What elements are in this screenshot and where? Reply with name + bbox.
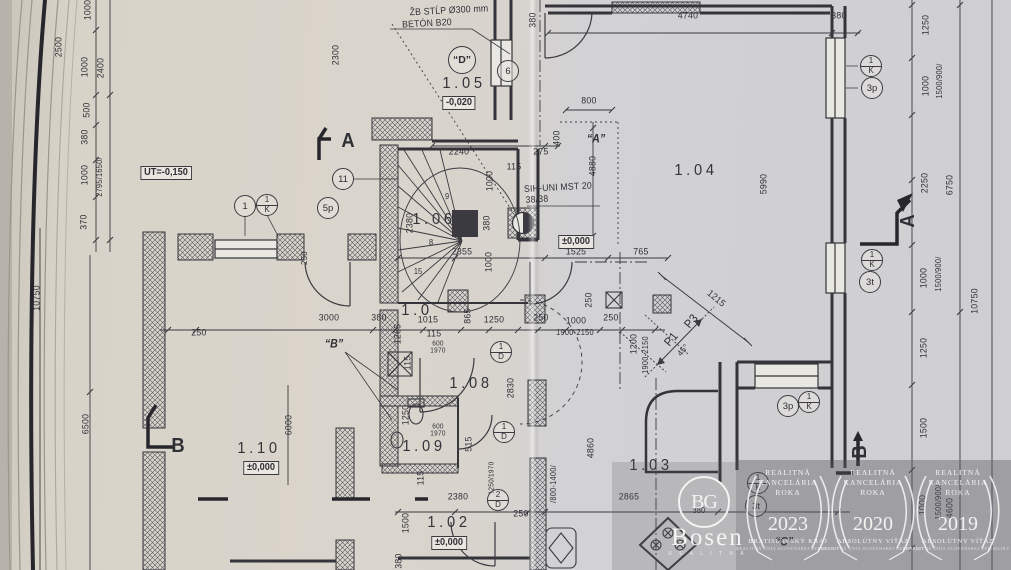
dimension-label: P1 bbox=[662, 330, 680, 348]
dimension-label: 380 bbox=[394, 553, 404, 568]
dimension-label: 1000 bbox=[919, 268, 929, 289]
dimension-label: 250 bbox=[533, 313, 548, 323]
dimension-label: 2240 bbox=[449, 147, 470, 157]
room-label-1.02: 1.02 bbox=[427, 515, 470, 531]
ref-marker-bottom: K bbox=[799, 402, 819, 411]
ref-marker-bottom: K bbox=[861, 66, 881, 75]
ref-marker-3p: 3p bbox=[861, 77, 883, 99]
ref-marker-1-D: 1D bbox=[490, 341, 512, 363]
dimension-label: 2830 bbox=[506, 378, 516, 399]
floor-plan-photo: 100025001000240050038010002795/1650/3701… bbox=[0, 0, 1011, 570]
dimension-label: 6750 bbox=[945, 175, 955, 196]
detail-ref-label: “C” bbox=[775, 537, 793, 549]
room-label-1.0: 1.0 bbox=[401, 303, 433, 319]
ref-marker-label: 3t bbox=[866, 277, 874, 288]
dimension-label: 765 bbox=[633, 247, 648, 257]
dimension-label: 370 bbox=[79, 214, 89, 229]
dimension-label: 1000 bbox=[918, 495, 928, 516]
dimension-label: 1000 bbox=[80, 165, 90, 186]
dimension-label: 600 bbox=[432, 341, 444, 348]
annotation-note: BETÓN B20 bbox=[402, 18, 452, 30]
dimension-label: 400 bbox=[552, 130, 562, 145]
ref-marker-label: 11 bbox=[338, 174, 348, 185]
dimension-label: 1250 bbox=[919, 338, 929, 359]
dimension-label: 5990 bbox=[759, 174, 769, 195]
ref-marker-bottom: D bbox=[494, 432, 514, 441]
ref-marker-3t: 3t bbox=[859, 271, 881, 293]
level-label: UT=-0,150 bbox=[140, 166, 191, 180]
ref-marker-top: 1 bbox=[748, 474, 768, 482]
dimension-label: 250 bbox=[300, 251, 309, 265]
dimension-label: 115 bbox=[416, 471, 426, 486]
dimension-label: 1500/900/ bbox=[935, 256, 943, 291]
ref-marker-label: 3p bbox=[867, 83, 878, 94]
dimension-label: 515 bbox=[464, 436, 474, 451]
dimension-label: 800 bbox=[581, 96, 596, 106]
detail-circle-D: “D” bbox=[448, 46, 476, 74]
dimension-label: 115 bbox=[507, 162, 522, 172]
ref-marker-1-K: 1K bbox=[256, 194, 278, 216]
dimension-label: 115 bbox=[427, 329, 442, 339]
dimension-label: 380 bbox=[482, 215, 492, 230]
dimension-label: 2380 bbox=[448, 492, 469, 502]
dimension-label: 250 bbox=[584, 292, 594, 307]
dimension-label: 380 bbox=[371, 313, 386, 323]
section-mark-B: B bbox=[171, 436, 184, 456]
room-label-1.09: 1.09 bbox=[402, 439, 445, 455]
room-label-1.04: 1.04 bbox=[674, 163, 717, 179]
dimension-label: 4740 bbox=[678, 11, 699, 21]
dimension-label: 380 bbox=[80, 129, 90, 144]
ref-marker-label: 5p bbox=[323, 203, 334, 214]
dimension-label: 1500 bbox=[919, 418, 929, 439]
dimension-label: P3 bbox=[682, 312, 700, 330]
ref-marker-top: 1 bbox=[491, 343, 511, 351]
detail-ref-label: “B” bbox=[325, 339, 343, 351]
ref-marker-1-K: 1K bbox=[861, 249, 883, 271]
stair-step-number: 15 bbox=[414, 268, 422, 276]
ref-marker-11: 11 bbox=[332, 168, 354, 190]
annotation-note: 38/38 bbox=[525, 195, 548, 206]
dimension-label: 1970 bbox=[430, 431, 445, 438]
ref-marker-bottom: K bbox=[748, 483, 768, 492]
ref-marker-3t: 3t bbox=[745, 495, 767, 517]
room-label-1.08: 1.08 bbox=[449, 376, 492, 392]
level-label: -0,020 bbox=[442, 96, 475, 110]
room-label-1.06: 1.06 bbox=[412, 212, 455, 228]
ref-marker-3p: 3p bbox=[777, 395, 799, 417]
dimension-label: 2795/1650/ bbox=[96, 157, 104, 197]
annotation-note: ŽB STĹP Ø300 mm bbox=[409, 4, 488, 18]
dimension-label: 1000 bbox=[921, 76, 931, 97]
dimension-label: 2250 bbox=[920, 173, 930, 194]
ref-marker-bottom: K bbox=[257, 205, 277, 214]
dimension-label: 1250 bbox=[921, 15, 931, 36]
dimension-label: 1900-2150 bbox=[642, 336, 650, 374]
stair-step-number: 8 bbox=[429, 239, 433, 247]
ref-marker-5p: 5p bbox=[317, 197, 339, 219]
ref-marker-label: 3t bbox=[752, 501, 760, 512]
dimension-label: 865 bbox=[463, 308, 473, 323]
dimension-label: /800-1400/ bbox=[550, 465, 558, 503]
dimension-label: 2300 bbox=[331, 45, 341, 66]
ref-marker-top: 1 bbox=[799, 393, 819, 401]
ref-marker-1-D: 1D bbox=[493, 421, 515, 443]
dimension-label: 6000 bbox=[284, 415, 294, 436]
ref-marker-bottom: D bbox=[488, 500, 508, 509]
dimension-label: 3000 bbox=[319, 313, 340, 323]
dimension-label: 1250 bbox=[401, 405, 411, 426]
room-label-1.05: 1.05 bbox=[442, 76, 485, 92]
dimension-label: 10750 bbox=[32, 285, 42, 311]
dimension-label: 10750 bbox=[970, 288, 980, 314]
detail-ref-label: “A” bbox=[587, 134, 605, 146]
ref-marker-top: 1 bbox=[257, 196, 277, 204]
ref-marker-label: 3p bbox=[783, 401, 794, 412]
dimension-label: 250 bbox=[603, 313, 618, 323]
dimension-label: 1000 bbox=[485, 171, 495, 192]
ref-marker-1-K: 1K bbox=[747, 472, 769, 494]
ref-marker-label: 1 bbox=[242, 201, 247, 212]
dimension-label: 1900-2150 bbox=[556, 329, 594, 337]
section-mark-B: B bbox=[850, 445, 870, 458]
dimension-label: 1200 bbox=[629, 334, 639, 355]
ref-marker-top: 2 bbox=[488, 491, 508, 499]
level-label: ±0,000 bbox=[243, 461, 278, 475]
dimension-label: 1500 bbox=[401, 513, 411, 534]
ref-marker-top: 1 bbox=[862, 251, 882, 259]
stair-step-number: 9 bbox=[445, 193, 449, 201]
dimension-label: 2865 bbox=[619, 492, 640, 502]
dimension-label: 1970 bbox=[430, 348, 445, 355]
dimension-label: 1265 bbox=[393, 324, 403, 345]
dimension-label: 275 bbox=[533, 147, 548, 157]
dimension-label: 45° bbox=[676, 342, 691, 357]
ref-marker-1-K: 1K bbox=[798, 391, 820, 413]
ref-marker-top: 1 bbox=[494, 423, 514, 431]
dimension-label: 1000 bbox=[83, 0, 93, 20]
dimension-label: 250 bbox=[191, 328, 206, 338]
dimension-label: 4880 bbox=[588, 156, 598, 177]
level-label: ±0,000 bbox=[431, 536, 466, 550]
dimension-label: 600 bbox=[432, 424, 444, 431]
dimension-label: 4600 bbox=[945, 498, 955, 519]
room-label-1.10: 1.10 bbox=[237, 441, 280, 457]
section-mark-A: A bbox=[898, 214, 918, 227]
dimension-label: 380 bbox=[692, 507, 705, 515]
dimension-label: 1000 bbox=[80, 57, 90, 78]
dimension-label: 500 bbox=[82, 102, 92, 117]
dimension-label: 1215 bbox=[705, 289, 727, 309]
ref-marker-1-K: 1K bbox=[860, 55, 882, 77]
dimension-label: 250 bbox=[513, 509, 528, 519]
dimension-label: 380 bbox=[831, 11, 846, 21]
dimension-label: 2355 bbox=[452, 247, 473, 257]
section-mark-A: A bbox=[341, 131, 354, 151]
level-label: ±0,000 bbox=[558, 235, 593, 249]
annotation-note: SIH-UNI MST 20 bbox=[524, 181, 592, 194]
detail-circle-label: “D” bbox=[453, 54, 471, 66]
ref-marker-label: 6 bbox=[505, 66, 510, 77]
room-label-1.03: 1.03 bbox=[629, 458, 672, 474]
ref-marker-2-D: 2D bbox=[487, 489, 509, 511]
ref-marker-1: 1 bbox=[234, 195, 256, 217]
dimension-label: 1500/900/ bbox=[935, 484, 943, 519]
ref-marker-6: 6 bbox=[497, 60, 519, 82]
dimension-label: 1000 bbox=[484, 252, 494, 273]
dimension-label: 4860 bbox=[586, 438, 596, 459]
dimension-label: 2500 bbox=[54, 37, 64, 58]
dimension-label: 1500/900/ bbox=[936, 63, 944, 98]
dimension-label: 1250 bbox=[484, 315, 505, 325]
ref-marker-bottom: D bbox=[491, 352, 511, 361]
ref-marker-bottom: K bbox=[862, 260, 882, 269]
dimension-label: 380 bbox=[528, 12, 538, 27]
ref-marker-top: 1 bbox=[861, 57, 881, 65]
dimension-label: 115 bbox=[403, 356, 413, 371]
label-layer: 100025001000240050038010002795/1650/3701… bbox=[0, 0, 1011, 570]
dimension-label: 6500 bbox=[81, 414, 91, 435]
dimension-label: 1000 bbox=[566, 316, 587, 326]
dimension-label: 2400 bbox=[96, 58, 106, 79]
